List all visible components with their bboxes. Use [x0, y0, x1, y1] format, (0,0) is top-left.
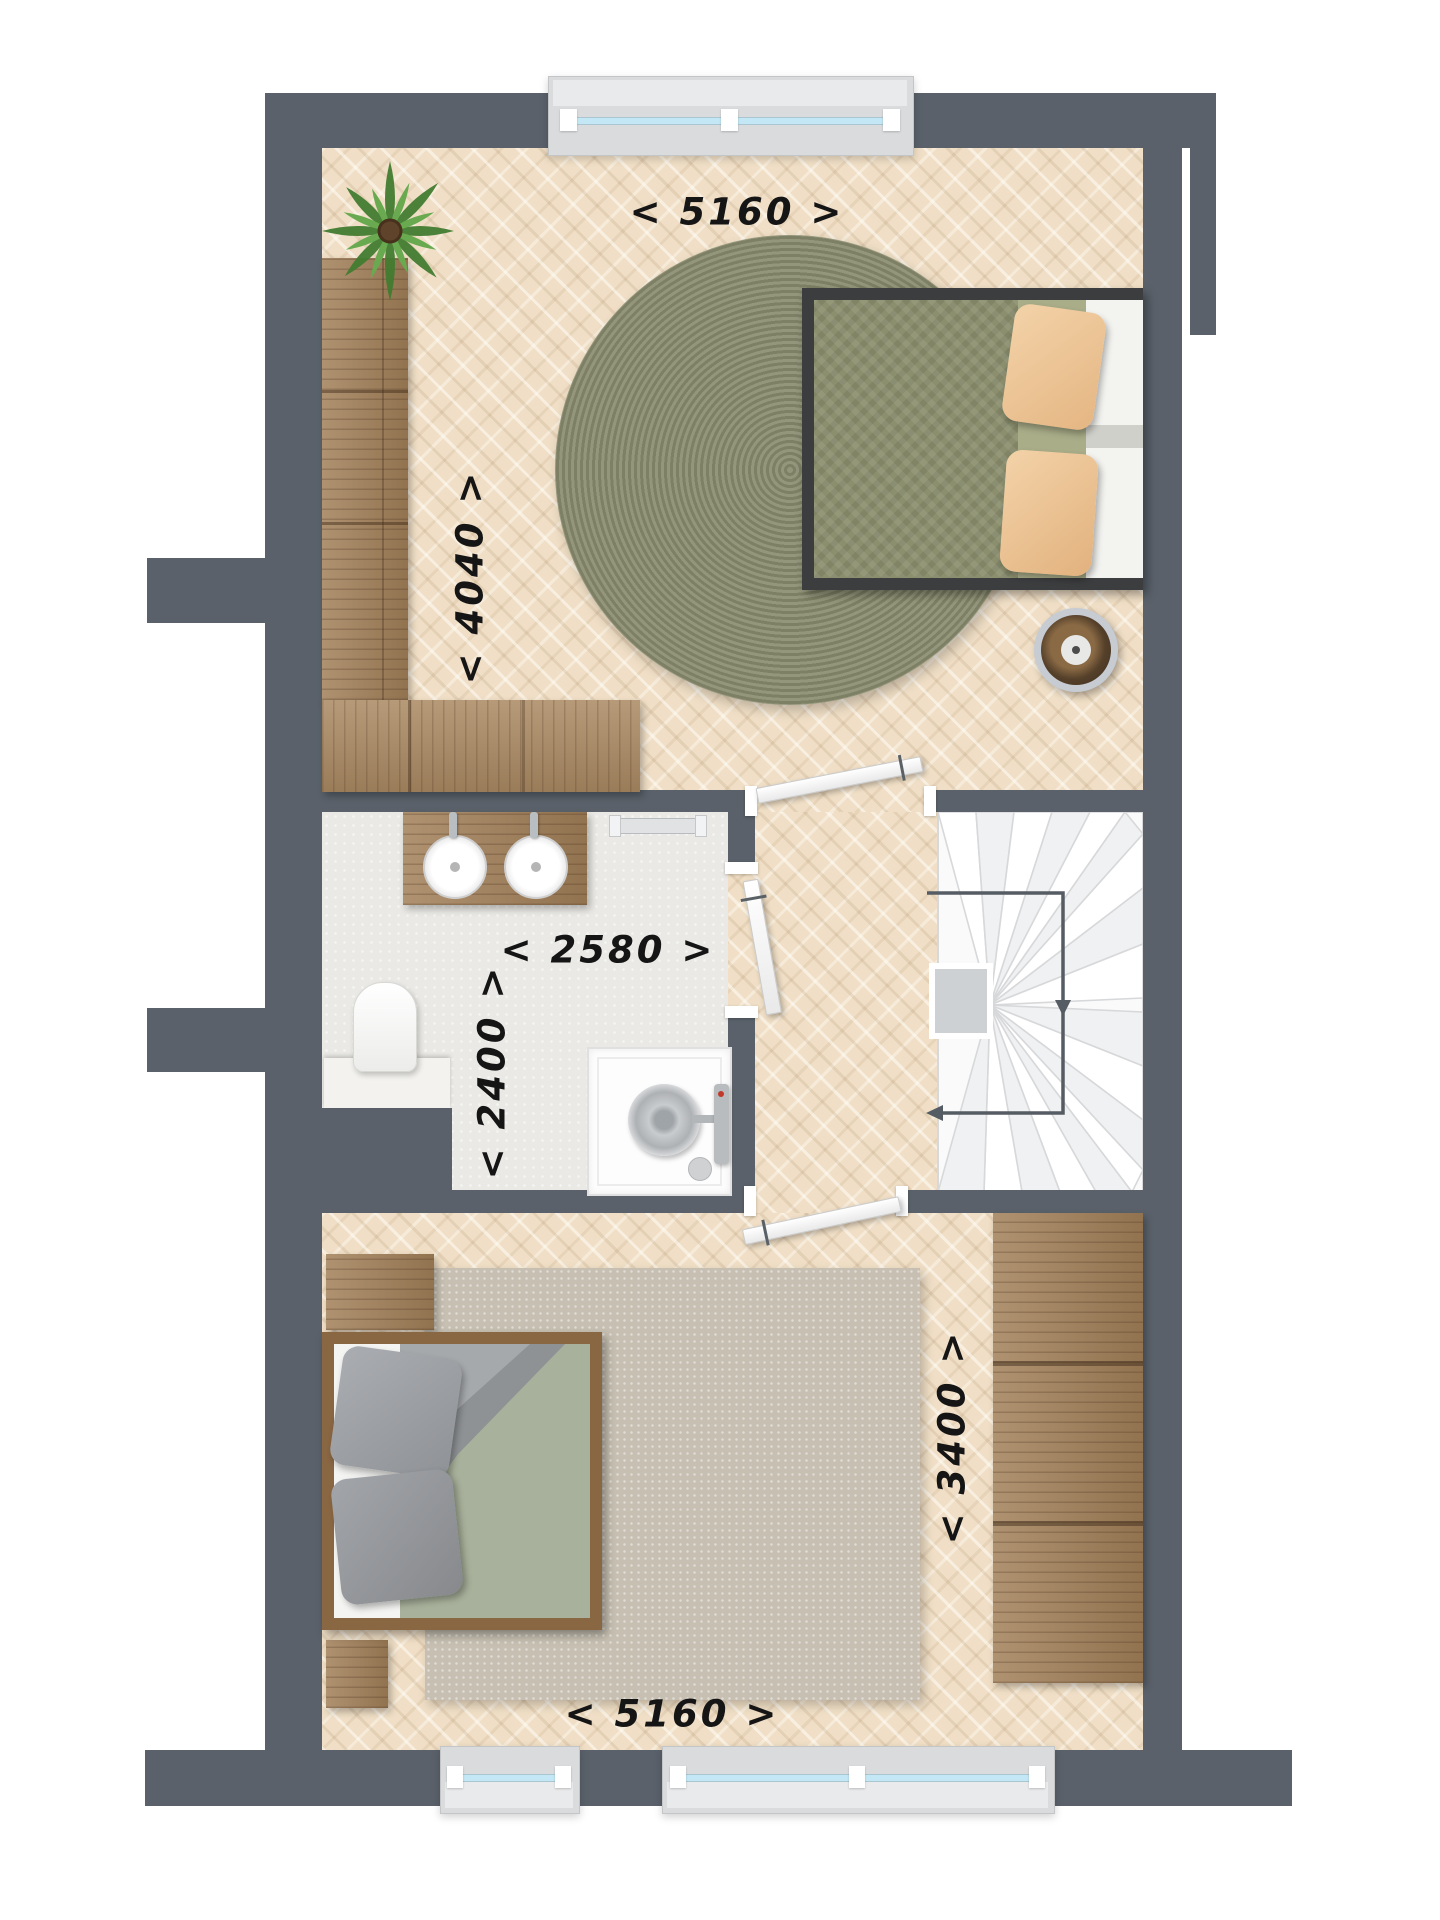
party-wall-stub-left-upper — [147, 558, 265, 623]
shower-head — [628, 1084, 700, 1156]
bedroom-top-partition-b — [928, 790, 1143, 812]
top-wall-left-of-window — [265, 93, 555, 148]
bathroom-duct-chunk — [322, 1108, 452, 1213]
bed-top-pillow-2 — [999, 449, 1099, 577]
washbasin-right — [504, 835, 568, 899]
dim-bathroom-width: < 2580 > — [501, 929, 716, 972]
wardrobe-top-bedroom-bottom — [322, 700, 640, 792]
dim-bedroom-bottom-depth: < 3400 > — [931, 1330, 974, 1545]
left-wall — [265, 148, 322, 1750]
washbasin-left — [423, 835, 487, 899]
nightstand-top — [326, 1254, 434, 1330]
shower — [587, 1047, 732, 1196]
bed-top-pillow-1 — [1000, 302, 1108, 432]
wardrobe-bottom-bedroom — [993, 1213, 1143, 1683]
dim-bedroom-top-width: < 5160 > — [630, 191, 845, 234]
dim-bathroom-depth: < 2400 > — [471, 965, 514, 1180]
plant — [305, 143, 475, 313]
shower-drain — [688, 1157, 712, 1181]
party-wall-stub-top-right — [1190, 148, 1216, 335]
pouf — [1034, 608, 1118, 692]
party-wall-stub-left-lower — [147, 1008, 265, 1072]
towel-rail — [612, 818, 704, 834]
right-wall — [1143, 148, 1182, 1750]
bed-bottom-pillow-1 — [328, 1344, 464, 1480]
bathroom-partition-lower — [728, 1010, 755, 1190]
bottom-wall-a — [145, 1750, 452, 1806]
bedroom-top-partition-a — [322, 790, 753, 812]
nightstand-bottom — [326, 1640, 388, 1708]
faucet-left — [449, 812, 457, 838]
faucet-right — [530, 812, 538, 838]
landing-floor — [728, 812, 938, 1213]
dim-bedroom-top-depth: < 4040 > — [449, 470, 492, 685]
bottom-wall-b — [567, 1750, 674, 1806]
stair-newel — [932, 966, 990, 1036]
landing-partition-b — [900, 1190, 1143, 1213]
wardrobe-top-bedroom-vertical — [322, 258, 408, 700]
top-wall-right-of-window — [905, 93, 1216, 148]
floor-plan: < 5160 > < 4040 > < 2580 > < 2400 > < 34… — [0, 0, 1440, 1920]
dim-bedroom-bottom-width: < 5160 > — [565, 1693, 780, 1736]
bed-bottom-pillow-2 — [330, 1468, 465, 1606]
bottom-wall-c — [1041, 1750, 1292, 1806]
staircase — [920, 812, 1143, 1192]
